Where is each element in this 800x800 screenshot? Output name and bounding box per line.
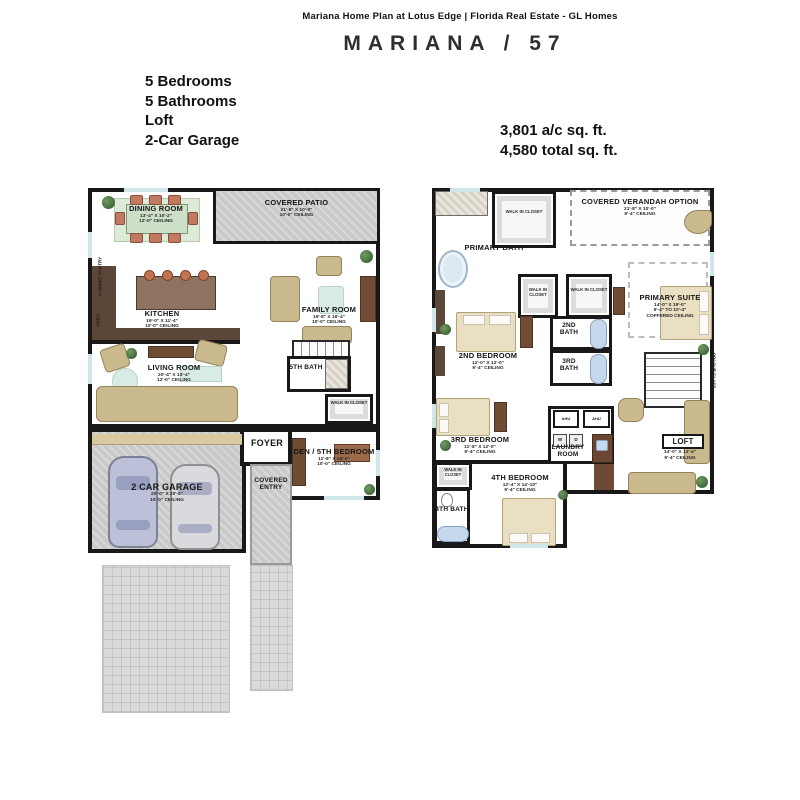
pillow — [439, 403, 449, 417]
walk-in-closet-area — [325, 394, 373, 424]
window — [450, 188, 480, 192]
fourth-bath-tub — [437, 526, 469, 542]
second-bedroom-label: 2ND BEDROOM 12'-0" X 12'-0" 9'-4" CEILIN… — [440, 352, 536, 372]
third-bath-tub — [590, 354, 607, 384]
room-name: 4TH BATH — [435, 506, 469, 513]
room-ceiling: 10'-0" CEILING — [282, 320, 376, 326]
shrub — [696, 476, 708, 488]
pillow — [531, 533, 550, 543]
laundry-sink — [596, 440, 608, 451]
room-name: FAMILY ROOM — [282, 306, 376, 315]
entry-walkway — [250, 565, 293, 691]
pillow — [439, 419, 449, 433]
room-ceiling: 10'-0" CEILING — [290, 462, 378, 468]
total-sqft: 4,580 total sq. ft. — [500, 141, 618, 161]
primary-suite-label: PRIMARY SUITE 14'-0" X 19'-0" 9'-4" TO 1… — [628, 294, 712, 319]
dryer-label: D — [569, 437, 583, 442]
feature-bathrooms: 5 Bathrooms — [145, 92, 239, 112]
shrub — [360, 250, 373, 263]
room-ceiling: 9'-4" CEILING — [440, 366, 536, 372]
floor-plan-page: { "header": { "site_line": "Mariana Home… — [0, 0, 800, 800]
room-name: 2ND BATH — [553, 322, 585, 337]
room-name: LAUNDRY ROOM — [544, 444, 592, 459]
laundry-room-label: LAUNDRY ROOM — [544, 444, 592, 459]
second-bath-label: 2ND BATH — [553, 322, 585, 337]
third-bedroom-dresser — [494, 402, 507, 432]
room-name: 2ND BEDROOM — [440, 352, 536, 361]
kitchen-label: KITCHEN 19'-0" X 11'-4" 10'-0" CEILING — [110, 310, 214, 330]
window — [124, 188, 168, 192]
family-room-label: FAMILY ROOM 19'-8" X 16'-4" 10'-0" CEILI… — [282, 306, 376, 326]
room-name: PRIMARY SUITE — [628, 294, 712, 303]
shrub — [698, 344, 709, 355]
car-rear-window — [116, 520, 150, 530]
window — [88, 232, 92, 258]
second-floor-plan: PRIMARY BATH WALK IN CLOSET COVERED VERA… — [432, 188, 714, 548]
room-ceiling: 9'-4" CEILING — [570, 212, 710, 218]
room-name: COVERED VERANDAH OPTION — [570, 198, 710, 207]
shrub — [364, 484, 375, 495]
covered-entry-label: COVERED ENTRY — [248, 477, 294, 492]
ahu-label: AHU — [583, 416, 610, 421]
pillow — [509, 533, 528, 543]
fourth-bedroom-label: 4TH BEDROOM 12'-4" X 14'-10" 9'-4" CEILI… — [470, 474, 570, 494]
room-name: WALK IN CLOSET — [568, 288, 610, 293]
fifth-bath-label: 5TH BATH — [289, 364, 323, 371]
room-name: COVERED PATIO — [215, 199, 378, 208]
window — [88, 354, 92, 384]
dining-chair — [149, 233, 162, 243]
driveway — [102, 565, 230, 713]
window — [324, 496, 364, 500]
dining-room-label: DINING ROOM 13'-4" X 10'-2" 12'-0" CEILI… — [114, 205, 198, 225]
walk-in-closet-mid-right-label: WALK IN CLOSET — [568, 288, 610, 293]
bar-stool — [162, 270, 173, 281]
opaque-glass-label: OPAQUE GLASS — [712, 349, 717, 393]
room-ceiling: 9'-4" CEILING — [470, 488, 570, 494]
walk-in-closet-mid-right — [566, 274, 612, 318]
area-stats: 3,801 a/c sq. ft. 4,580 total sq. ft. — [500, 121, 618, 161]
room-name: 4TH BEDROOM — [470, 474, 570, 483]
loft-armchair — [618, 398, 644, 422]
second-bedroom-dresser — [520, 316, 533, 348]
room-name: WALK IN CLOSET — [520, 288, 556, 298]
shrub — [126, 348, 137, 359]
feature-garage: 2-Car Garage — [145, 131, 239, 151]
shrub — [440, 324, 451, 335]
walk-in-closet-top-label: WALK IN CLOSET — [500, 210, 548, 215]
third-bedroom-label: 3RD BEDROOM 11'-8" X 12'-0" 9'-4" CEILIN… — [434, 436, 526, 456]
feature-list: 5 Bedrooms 5 Bathrooms Loft 2-Car Garage — [145, 72, 239, 150]
walk-in-closet-top — [492, 191, 556, 248]
room-name: WALK IN CLOSET — [500, 210, 548, 215]
third-bath-label: 3RD BATH — [553, 358, 585, 373]
room-name: LIVING ROOM — [122, 364, 226, 373]
feature-bedrooms: 5 Bedrooms — [145, 72, 239, 92]
room-name: DEN / 5TH BEDROOM — [290, 448, 378, 457]
walk-in-closet-mid-left-label: WALK IN CLOSET — [520, 288, 556, 298]
primary-dresser — [613, 287, 625, 315]
site-breadcrumb-line: Mariana Home Plan at Lotus Edge | Florid… — [302, 11, 617, 22]
third-bed — [436, 398, 490, 436]
bar-stool — [180, 270, 191, 281]
room-ceiling: 10'-0" CEILING — [215, 213, 378, 219]
fourth-bed — [502, 498, 556, 546]
washer-label: W — [553, 437, 567, 442]
room-ceiling: 12'-0" CEILING — [114, 219, 198, 225]
ac-sqft: 3,801 a/c sq. ft. — [500, 121, 618, 141]
room-name: 5TH BATH — [289, 364, 323, 371]
feature-loft: Loft — [145, 111, 239, 131]
window — [710, 252, 714, 276]
pillow — [489, 315, 511, 325]
garage-label: 2 CAR GARAGE 20'-0" X 20'-0" 10'-0" CEIL… — [100, 482, 234, 503]
room-name: WALK IN CLOSET — [437, 468, 469, 477]
car-rear-window — [178, 524, 212, 533]
oven-label: OVEN — [96, 307, 101, 335]
primary-shower — [435, 191, 488, 216]
room-name: KITCHEN — [110, 310, 214, 319]
room-name: LOFT — [673, 437, 694, 446]
window — [432, 404, 436, 428]
bar-stool — [144, 270, 155, 281]
den-label: DEN / 5TH BEDROOM 11'-8" X 14'-0" 10'-0"… — [290, 448, 378, 468]
fifth-bath-shower — [325, 359, 348, 389]
verandah-label: COVERED VERANDAH OPTION 21'-8" X 10'-0" … — [570, 198, 710, 218]
room-name: 3RD BATH — [553, 358, 585, 373]
room-name: WALK IN CLOSET — [329, 401, 369, 406]
pillow — [463, 315, 485, 325]
walk-in-closet-bottom-label: WALK IN CLOSET — [437, 468, 469, 477]
kitchen-counter — [92, 328, 240, 344]
room-name: FOYER — [238, 438, 296, 448]
loft-dims-label: 14'-0" X 13'-4" 9'-4" CEILING — [652, 450, 708, 461]
room-name: PRIMARY BATH — [462, 244, 526, 253]
kitchen-island — [136, 276, 216, 310]
pantry-cabinet-label: CABINET PANTRY — [98, 257, 103, 297]
room-name: 3RD BEDROOM — [434, 436, 526, 445]
room-ceiling: 10'-0" CEILING — [100, 498, 234, 504]
room-ceiling: 10'-0" CEILING — [110, 324, 214, 330]
room-ceiling-type: COFFERED CEILING — [628, 314, 712, 320]
room-name: DINING ROOM — [114, 205, 198, 214]
console-table — [148, 346, 194, 358]
foyer-label: FOYER — [238, 438, 296, 448]
family-armchair — [316, 256, 342, 276]
plan-title: MARIANA / 57 — [343, 32, 566, 56]
garage-shelving — [92, 434, 242, 445]
freestanding-tub — [438, 250, 468, 288]
ahu-label: AHU — [553, 416, 579, 421]
living-room-label: LIVING ROOM 20'-4" X 13'-4" 12'-0" CEILI… — [122, 364, 226, 384]
second-bath-tub — [590, 319, 607, 349]
first-floor-plan: DINING ROOM 13'-4" X 10'-2" 12'-0" CEILI… — [88, 188, 380, 565]
room-name: 2 CAR GARAGE — [100, 482, 234, 492]
window — [432, 308, 436, 332]
bar-stool — [198, 270, 209, 281]
dining-chair — [130, 233, 143, 243]
primary-bath-label: PRIMARY BATH — [462, 244, 526, 253]
window — [510, 544, 548, 548]
second-bed — [456, 312, 516, 352]
covered-patio-label: COVERED PATIO 21'-8" X 10'-0" 10'-0" CEI… — [215, 199, 378, 219]
toilet — [441, 493, 453, 507]
fourth-bath-label: 4TH BATH — [435, 506, 469, 513]
room-ceiling: 9'-4" CEILING — [434, 450, 526, 456]
car — [170, 464, 220, 550]
dining-chair — [168, 233, 181, 243]
room-name: COVERED ENTRY — [248, 477, 294, 492]
walk-in-closet-label: WALK IN CLOSET — [329, 401, 369, 406]
loft-sofa — [628, 472, 696, 494]
room-ceiling: 9'-4" CEILING — [652, 456, 708, 462]
sectional-sofa — [96, 386, 238, 422]
loft-label-box: LOFT — [662, 434, 704, 449]
room-ceiling: 12'-0" CEILING — [122, 378, 226, 384]
